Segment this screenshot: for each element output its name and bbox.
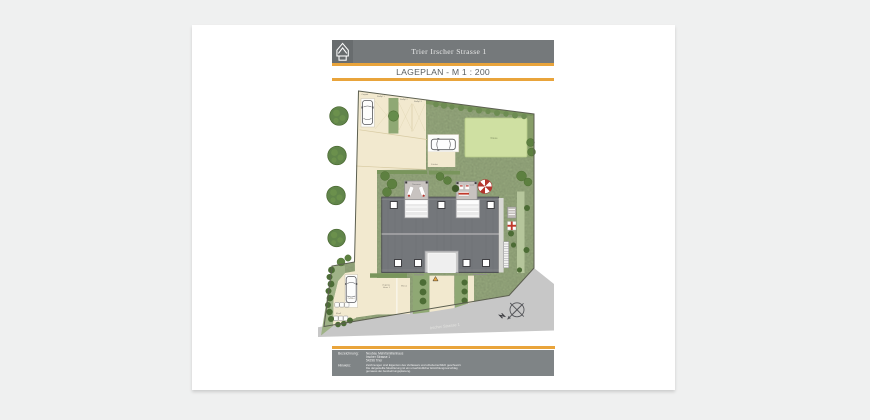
svg-text:Stellpl. 1: Stellpl. 1 <box>377 95 386 98</box>
svg-text:Carport: Carport <box>362 93 369 96</box>
svg-text:Terrasse: Terrasse <box>412 183 421 186</box>
svg-text:Wiese: Wiese <box>490 136 498 140</box>
svg-text:Muell: Muell <box>336 313 342 315</box>
svg-text:Wiese: Wiese <box>401 286 408 288</box>
svg-text:Zufahrt: Zufahrt <box>348 297 355 300</box>
svg-text:Stellpl. 3: Stellpl. 3 <box>414 100 423 103</box>
svg-text:Zufahrt: Zufahrt <box>431 163 438 166</box>
svg-text:Haus 1: Haus 1 <box>383 287 391 289</box>
svg-text:Stellpl. 2: Stellpl. 2 <box>400 98 409 101</box>
